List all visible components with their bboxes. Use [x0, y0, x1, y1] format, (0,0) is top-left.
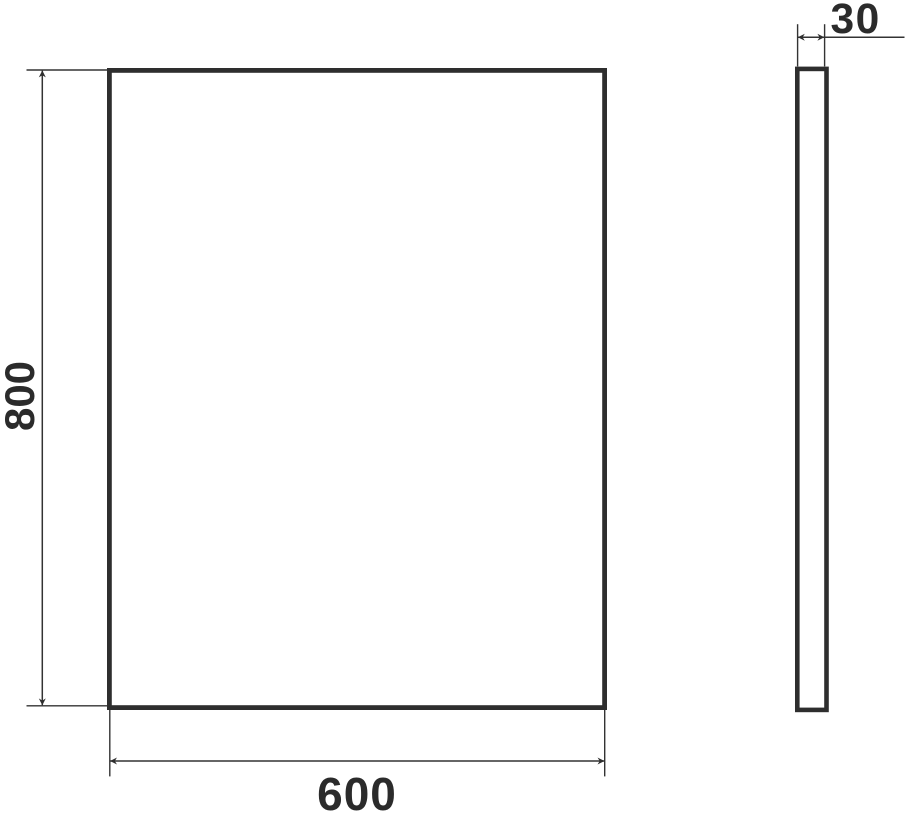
svg-text:30: 30	[831, 0, 881, 43]
svg-text:800: 800	[0, 361, 43, 431]
svg-text:600: 600	[317, 768, 397, 811]
